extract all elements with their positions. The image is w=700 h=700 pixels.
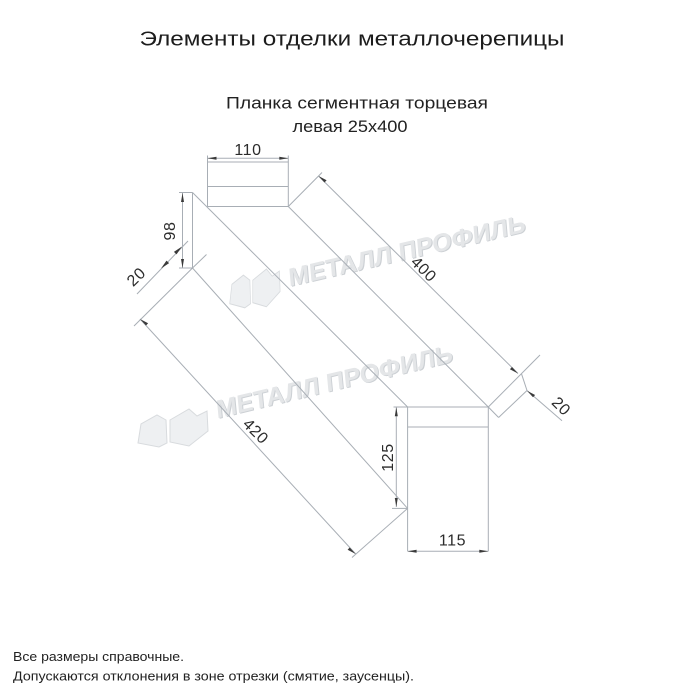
svg-text:420: 420 <box>239 416 271 448</box>
svg-text:20: 20 <box>548 394 573 419</box>
svg-text:Допускаются отклонения в зоне: Допускаются отклонения в зоне отрезки (с… <box>13 669 414 684</box>
svg-text:20: 20 <box>124 265 149 290</box>
svg-text:МЕТАЛЛ ПРОФИЛЬ: МЕТАЛЛ ПРОФИЛЬ <box>215 340 454 425</box>
svg-text:110: 110 <box>234 142 261 159</box>
svg-text:Элементы отделки металлочерепи: Элементы отделки металлочерепицы <box>140 27 565 50</box>
svg-text:125: 125 <box>380 443 397 472</box>
svg-text:115: 115 <box>439 533 466 550</box>
svg-text:98: 98 <box>162 222 179 241</box>
svg-text:левая 25х400: левая 25х400 <box>293 118 408 136</box>
svg-text:Планка сегментная торцевая: Планка сегментная торцевая <box>226 95 488 113</box>
svg-text:МЕТАЛЛ ПРОФИЛЬ: МЕТАЛЛ ПРОФИЛЬ <box>287 210 526 293</box>
svg-text:Все размеры справочные.: Все размеры справочные. <box>13 649 184 664</box>
